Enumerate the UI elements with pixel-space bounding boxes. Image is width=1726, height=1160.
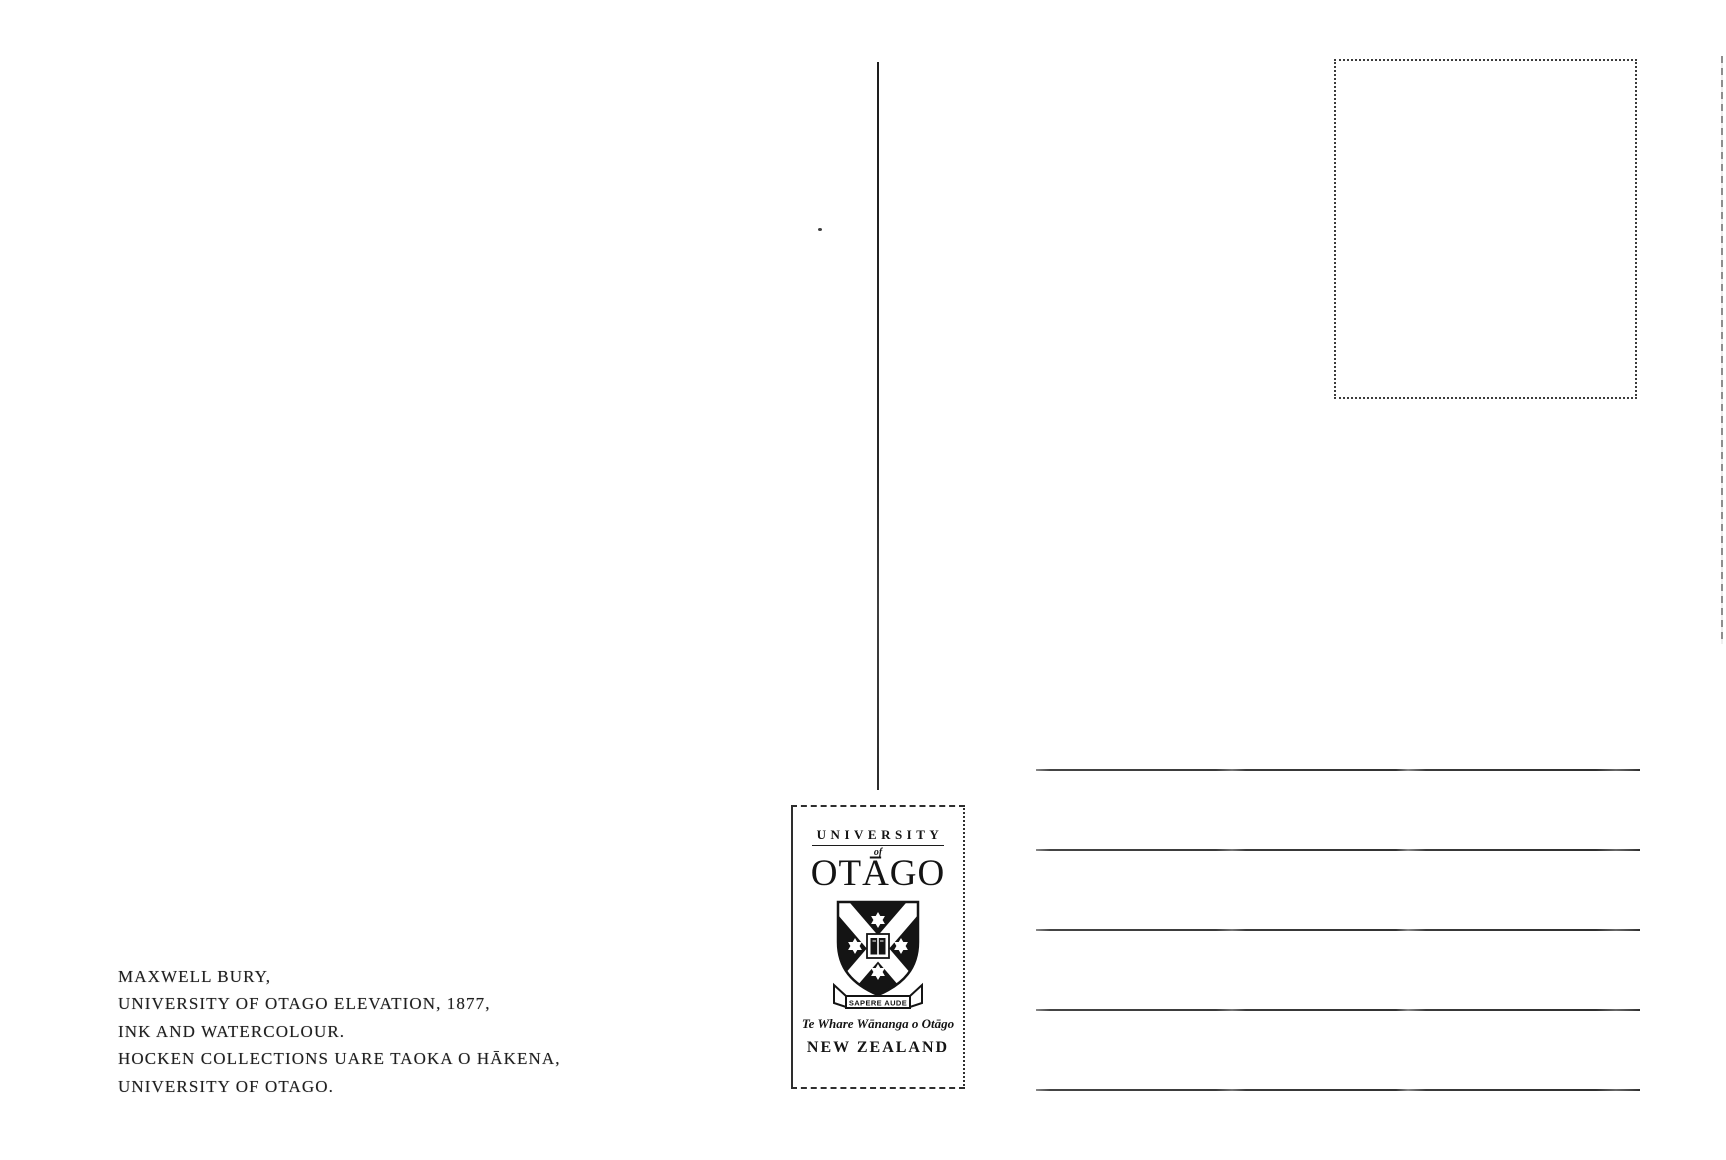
ink-speck <box>818 228 822 231</box>
motto-text: SAPERE AUDE <box>849 999 907 1008</box>
book-icon <box>867 934 889 958</box>
logo-university-text: UNIVERSITY <box>812 827 945 846</box>
scan-edge-artifact <box>1721 56 1723 644</box>
logo-country-text: NEW ZEALAND <box>807 1039 949 1057</box>
stamp-box <box>1334 59 1637 399</box>
address-line <box>1036 929 1640 931</box>
caption-line-title: UNIVERSITY OF OTAGO ELEVATION, 1877, <box>118 990 561 1017</box>
caption-line-medium: INK AND WATERCOLOUR. <box>118 1018 561 1045</box>
university-of-otago-logo: UNIVERSITY of OTĀGO <box>791 805 965 1089</box>
address-line <box>1036 769 1640 771</box>
logo-otago-text: OTĀGO <box>811 855 945 892</box>
artwork-caption: MAXWELL BURY, UNIVERSITY OF OTAGO ELEVAT… <box>118 963 561 1100</box>
address-line <box>1036 1089 1640 1091</box>
postcard-back: MAXWELL BURY, UNIVERSITY OF OTAGO ELEVAT… <box>0 0 1726 1160</box>
address-line <box>1036 1009 1640 1011</box>
caption-line-artist: MAXWELL BURY, <box>118 963 561 990</box>
logo-maori-name: Te Whare Wānanga o Otāgo <box>802 1016 954 1032</box>
caption-line-institution: UNIVERSITY OF OTAGO. <box>118 1073 561 1100</box>
postcard-divider-line <box>877 62 879 790</box>
university-crest-icon: SAPERE AUDE <box>826 900 930 1012</box>
address-line <box>1036 849 1640 851</box>
caption-line-collection: HOCKEN COLLECTIONS UARE TAOKA O HĀKENA, <box>118 1045 561 1072</box>
